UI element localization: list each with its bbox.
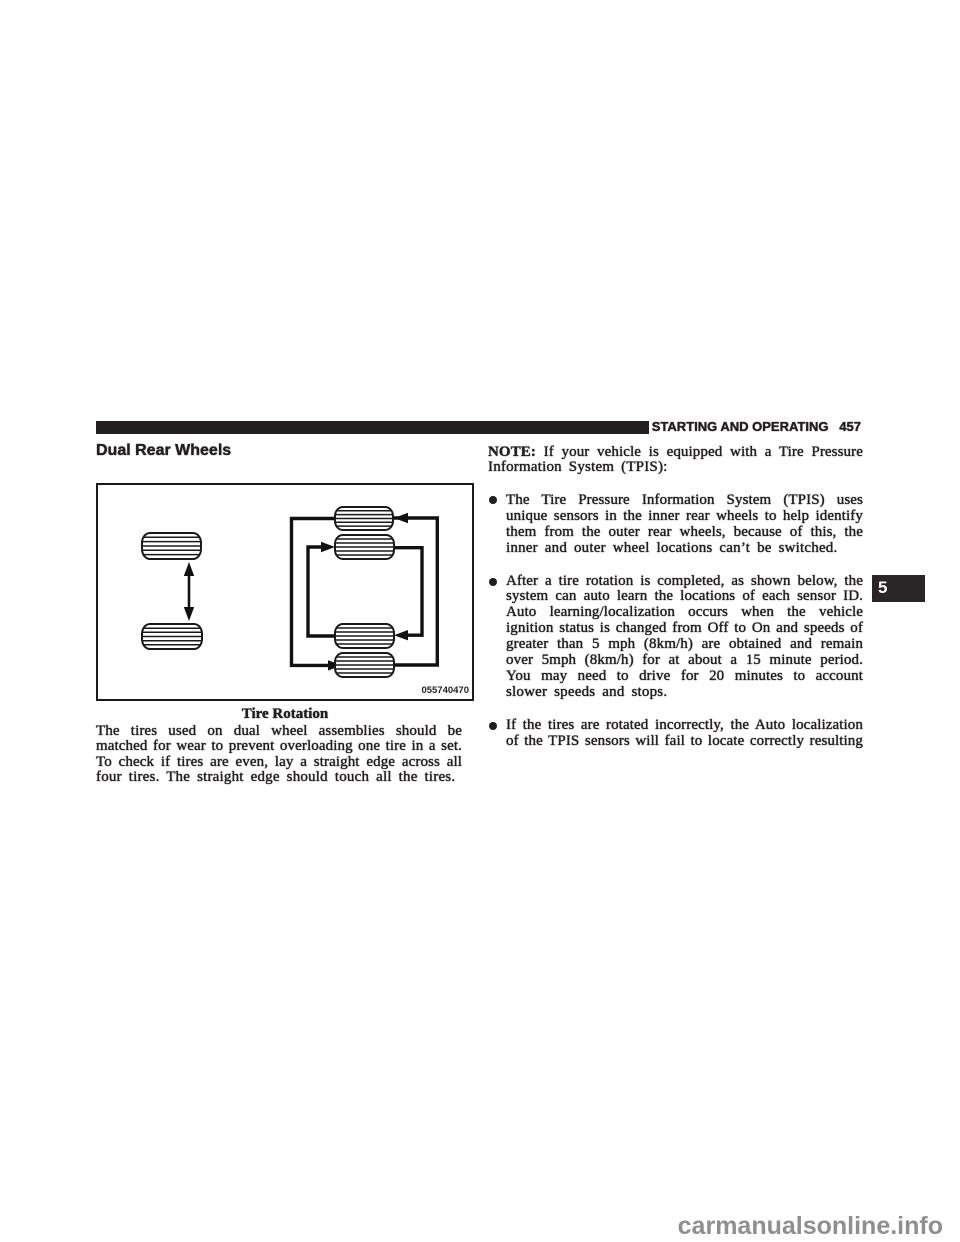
svg-text:055740470: 055740470: [421, 685, 469, 696]
